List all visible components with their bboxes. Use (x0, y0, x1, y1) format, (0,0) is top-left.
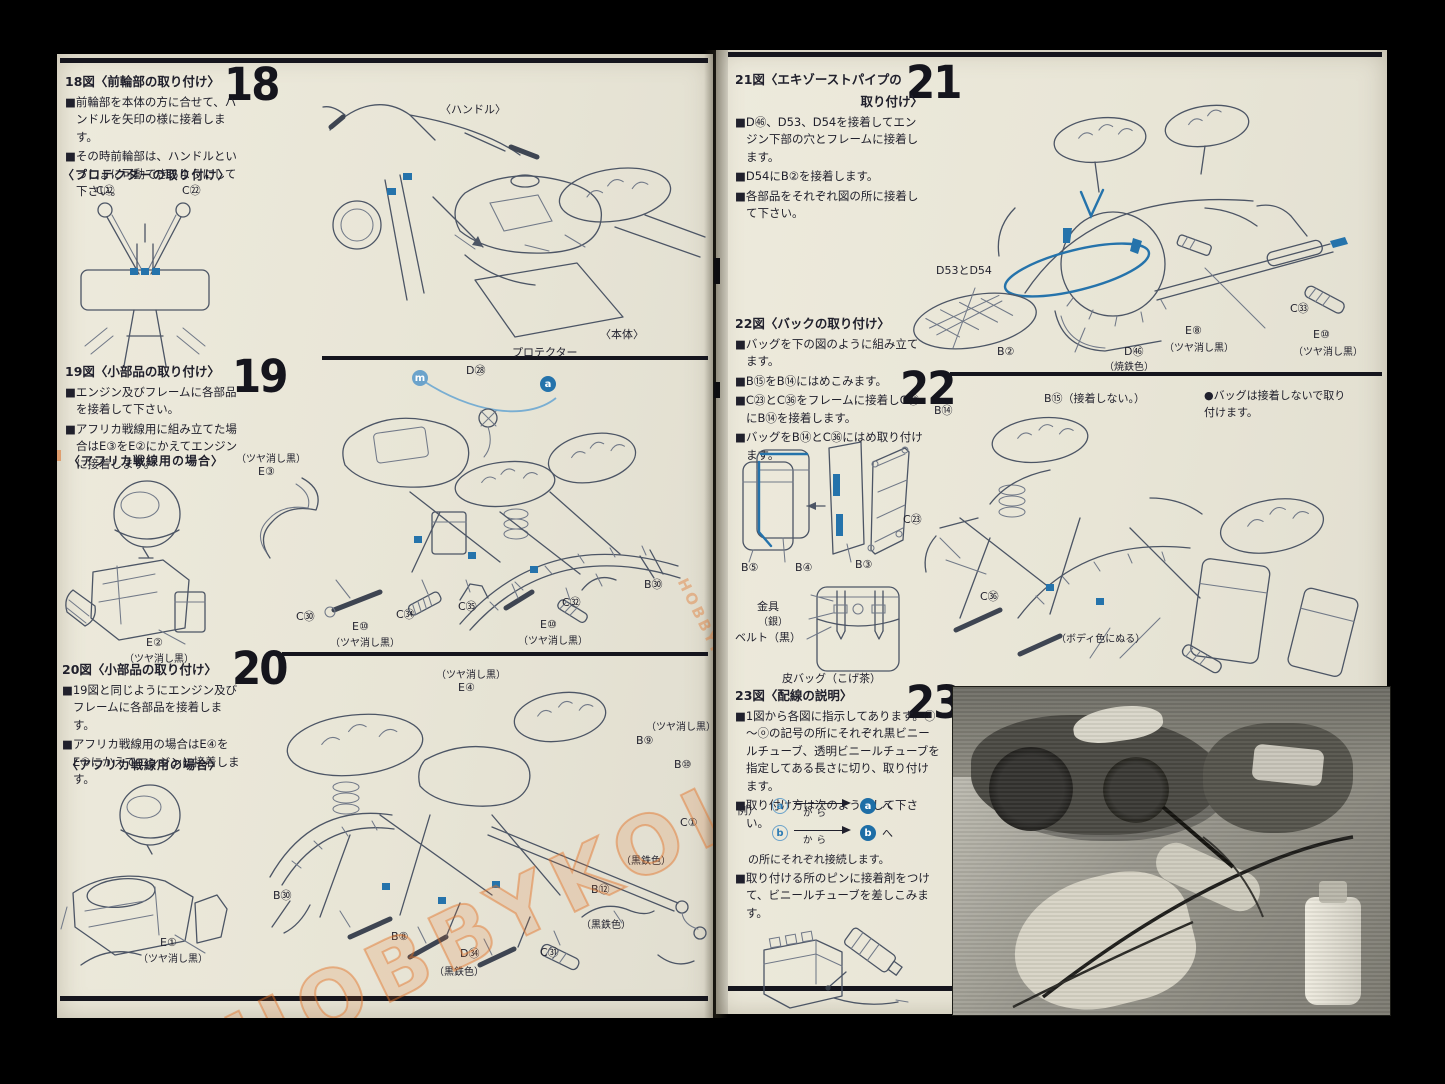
part-label-b9: B⑨ (636, 734, 653, 747)
protector-diagram (75, 196, 217, 374)
step-21-text: 21図〈エキゾーストパイプの 取り付け〉 ■D㊻、D53、D54を接着してエンジ… (735, 70, 923, 225)
step-18-bullet: ■前輪部を本体の方に合せて、ハンドルを矢印の様に接着します。 (65, 94, 240, 146)
example-label: 例） (737, 802, 759, 818)
africa-version-diagram-19 (55, 472, 230, 657)
photo-seat-highlight (1071, 701, 1165, 747)
part-label-b14: B⑭ (934, 402, 953, 418)
step-19-title: 19図〈小部品の取り付け〉 (65, 362, 243, 381)
bag-assembly-diagram (737, 424, 909, 562)
photo-background-top (953, 687, 1390, 777)
part-label-e10b: E⑩ (540, 618, 557, 631)
part-label-b4: B④ (795, 561, 812, 574)
part-label-c32: C㉜ (562, 594, 581, 610)
step-19-subtitle: 〈アフリカ戦線用の場合〉 (68, 452, 224, 469)
binding-mark (714, 258, 720, 284)
part-label-e10: E⑩ (1313, 328, 1330, 341)
part-note-b9: （ツヤ消し黒） (646, 718, 716, 733)
step-19-diagram-svg (320, 362, 710, 658)
step-22-bullet: ■バッグを下の図のように組み立てます。 (735, 336, 927, 371)
step-22-bullet: ■C㉓とC㊱をフレームに接着しC㉓にB⑭を接着します。 (735, 392, 927, 427)
step-20-bullet: ■19図と同じようにエンジン及びフレームに各部品を接着します。 (62, 682, 242, 734)
part-label-d28: D㉘ (466, 362, 485, 378)
step-18-subtitle: 〈プロテクターの取り付け〉 (62, 166, 231, 183)
part-label-b10: B⑩ (674, 758, 691, 771)
step-21-bullet: ■各部品をそれぞれ図の所に接着して下さい。 (735, 188, 923, 223)
wiring-arrow: から (794, 796, 854, 816)
part-label-e2: E② (146, 636, 163, 649)
part-label-c31: C㉛ (540, 944, 559, 960)
section-rule-22 (950, 372, 1382, 376)
part-note-e1: （ツヤ消し黒） (138, 950, 208, 965)
part-label-b15: B⑮（接着しない。） (1044, 390, 1145, 406)
scanned-instruction-spread: 18 18図〈前輪部の取り付け〉 ■前輪部を本体の方に合せて、ハンドルを矢印の様… (0, 0, 1445, 1084)
photo-sidecar (1203, 723, 1353, 833)
step-23-text2: ■取り付ける所のピンに接着剤をつけて、ビニールチューブを差しこみます。 (735, 870, 935, 924)
arrow-line (794, 830, 848, 831)
part-note-e8: （ツヤ消し黒） (1164, 339, 1234, 354)
top-rule-right (728, 52, 1382, 57)
part-label-b8: B⑧ (391, 930, 408, 943)
marker-a-to: a (860, 798, 876, 814)
bag-assembly-svg (737, 424, 909, 562)
part-label-c36: C㊱ (980, 588, 999, 604)
margin-mark (57, 450, 61, 461)
part-label-c34: C㉞ (396, 606, 415, 622)
step-23-title: 23図〈配線の説明〉 (735, 686, 940, 705)
step-21-diagram (905, 88, 1385, 368)
top-rule-left (60, 58, 708, 63)
photo-bottle (1305, 897, 1361, 1005)
assembly-photo (952, 686, 1391, 1016)
kara-label: から (803, 832, 830, 846)
arrow-line (794, 803, 848, 804)
step-20-diagram (230, 665, 710, 990)
step-18-diagram-svg (315, 85, 710, 355)
part-label-c35: C㉟ (458, 598, 477, 614)
photo-wires-svg (953, 687, 1390, 1015)
wiring-arrow: から (794, 823, 854, 843)
part-note-d34: （黒鉄色） (434, 963, 484, 978)
part-note-e3: （ツヤ消し黒） (236, 450, 306, 465)
step-22-bullet: ■B⑮をB⑭にはめこみます。 (735, 373, 927, 390)
step-18-diagram (315, 85, 710, 355)
marker-b-to: b (860, 825, 876, 841)
part-label-b5: B⑤ (741, 561, 758, 574)
photo-bottle-cap (1319, 881, 1347, 903)
step-23-bullet: ■取り付ける所のピンに接着剤をつけて、ビニールチューブを差しこみます。 (735, 870, 935, 922)
step-21-title-line2: 取り付け〉 (735, 92, 923, 111)
part-note-e10: （ツヤ消し黒） (1293, 343, 1363, 358)
binding-mark (714, 382, 720, 398)
part-label-e4: E④ (458, 681, 475, 694)
photo-front-wheel (989, 747, 1073, 831)
wiring-marker-m: m (412, 370, 428, 386)
part-note-e10: （ツヤ消し黒） (330, 634, 400, 649)
part-label-d53-d54: D53とD54 (936, 262, 992, 278)
part-note-e4: （ツヤ消し黒） (436, 666, 506, 681)
marker-a-from: a (772, 798, 788, 814)
e3-pipe-svg (232, 472, 332, 564)
step-18-text: 18図〈前輪部の取り付け〉 ■前輪部を本体の方に合せて、ハンドルを矢印の様に接着… (65, 72, 240, 203)
step-20-title: 20図〈小部品の取り付け〉 (62, 660, 242, 679)
part-label-b30: B㉚ (273, 887, 292, 903)
part-label-e8: E⑧ (1185, 324, 1202, 337)
part-note-c1: （黒鉄色） (621, 852, 671, 867)
label-kawabag: 皮バッグ（こげ茶） (782, 670, 881, 686)
label-kanagu: 金具 (757, 598, 779, 614)
label-belt: ベルト（黒） (735, 629, 801, 645)
step-20-subtitle: 〈アフリカ戦線用の場合〉 (66, 756, 222, 773)
part-note-e10b: （ツヤ消し黒） (518, 632, 588, 647)
bag-detail-svg (795, 583, 910, 683)
africa-19-svg (55, 472, 230, 657)
label-handle: 〈ハンドル〉 (440, 101, 506, 117)
part-label-d46: D㊻ (1124, 343, 1143, 359)
part-label-b2: B② (997, 345, 1014, 358)
step-21-title-line1: 21図〈エキゾーストパイプの (735, 70, 923, 89)
step-21-bullet: ■D54にB②を接着します。 (735, 168, 923, 185)
wiring-example-row-a: a から a へ (772, 796, 893, 816)
label-protector: プロテクター (512, 344, 578, 360)
photo-hand (1000, 857, 1206, 1016)
part-label-c23: C㉓ (903, 511, 922, 527)
wiring-example-row-b: b から b へ (772, 823, 893, 843)
part-label-c1: C① (680, 816, 698, 829)
part-label-b3: B③ (855, 558, 872, 571)
photo-motorcycle-body (971, 715, 1221, 835)
step-18-title: 18図〈前輪部の取り付け〉 (65, 72, 240, 91)
he-label: へ (882, 825, 893, 841)
part-note-b12: （黒鉄色） (581, 916, 631, 931)
photo-rear-wheel (1103, 757, 1169, 823)
label-body: 〈本体〉 (600, 326, 644, 342)
photo-sidecar-highlight (1251, 743, 1324, 786)
step-23-mid-note: の所にそれぞれ接続します。 (748, 852, 948, 869)
step-22-title: 22図〈バックの取り付け〉 (735, 314, 927, 333)
part-label-b30: B㉚ (644, 576, 663, 592)
glue-diagram-svg (752, 920, 917, 1015)
part-label-e10: E⑩ (352, 620, 369, 633)
step-19-diagram (320, 362, 710, 658)
bag-detail-diagram (795, 583, 910, 683)
part-label-e1: E① (160, 936, 177, 949)
part-label-c30: C㉚ (296, 608, 315, 624)
e3-pipe-sketch (232, 472, 332, 564)
part-label-d34: D㉞ (460, 945, 479, 961)
part-note-body-color: （ボディ色にぬる） (1056, 630, 1145, 645)
marker-b-from: b (772, 825, 788, 841)
step-23-bullet: ■1図から各図に指示してあります。ⓐ～ⓞの記号の所にそれぞれ黒ビニールチューブ、… (735, 708, 940, 795)
protector-diagram-svg (75, 196, 217, 374)
step-21-bullet: ■D㊻、D53、D54を接着してエンジン下部の穴とフレームに接着します。 (735, 114, 923, 166)
he-label: へ (882, 798, 893, 814)
glue-diagram (752, 920, 917, 1015)
wiring-marker-a: a (540, 376, 556, 392)
part-note-d46: （焼鉄色） (1104, 358, 1154, 373)
part-label-b12: B⑫ (591, 881, 610, 897)
step-19-bullet: ■エンジン及びフレームに各部品を接着して下さい。 (65, 384, 243, 419)
wiring-example: a から a へ b から b へ (772, 796, 893, 850)
photo-finger (1150, 836, 1267, 917)
bottom-rule-left (60, 996, 708, 1001)
step-20-diagram-svg (230, 665, 710, 990)
kara-label: から (803, 805, 830, 819)
label-gin: （銀） (758, 613, 788, 628)
part-label-c33: C㉝ (1290, 300, 1309, 316)
step-21-diagram-svg (905, 88, 1385, 368)
